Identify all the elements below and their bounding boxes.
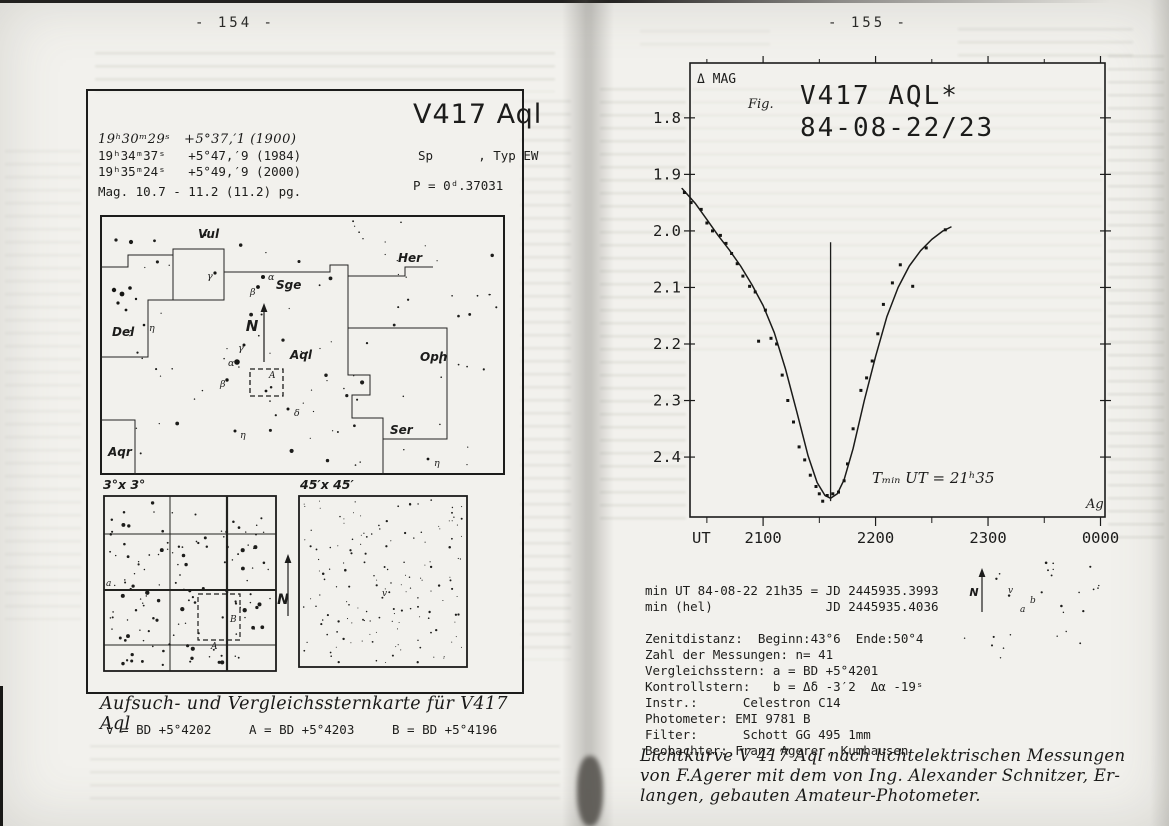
coordinate-line: 19ʰ35ᵐ24ˢ +5°49,′9 (2000) [98, 164, 301, 180]
spectral-type-line: Sp , Typ EW [418, 148, 538, 164]
star-name-title: V417 Aql [413, 99, 542, 130]
svg-text:Tₘᵢₙ UT = 21ʰ35: Tₘᵢₙ UT = 21ʰ35 [872, 469, 994, 487]
svg-text:v: v [382, 589, 387, 599]
svg-text:UT: UT [692, 529, 711, 547]
chart-45-arcmin: v [298, 495, 468, 668]
svg-text:γ: γ [238, 343, 244, 354]
svg-text:β: β [219, 379, 226, 390]
svg-text:Sge: Sge [276, 278, 301, 292]
svg-text:η: η [240, 430, 246, 441]
scan-edge-top [0, 0, 1169, 3]
observation-data-block: min UT 84-08-22 21h35 = JD 2445935.3993 … [645, 583, 939, 759]
constellation-finder-map: γαβγαβδηηηVulSgeHerDelAqlOphSerAqrAN [100, 215, 505, 475]
svg-text:η: η [149, 323, 155, 334]
svg-text:v: v [1008, 586, 1013, 596]
svg-text:Ag: Ag [1085, 497, 1104, 512]
bleed-through-text [95, 52, 555, 92]
bleed-through-text [640, 30, 770, 54]
page-number-right: - 155 - [783, 15, 953, 31]
svg-text:A: A [268, 371, 276, 381]
panel-45-label: 45′x 45′ [300, 477, 354, 492]
svg-text:Del: Del [112, 325, 135, 339]
svg-text:δ: δ [294, 408, 300, 419]
svg-text:Oph: Oph [420, 350, 447, 364]
light-curve-chart: 1.81.92.02.12.22.32.42100220023000000UTΔ… [640, 55, 1150, 560]
scan-edge-left [0, 686, 3, 826]
svg-text:Aql: Aql [289, 348, 313, 362]
svg-text:Aqr: Aqr [107, 445, 133, 459]
svg-text:2.4: 2.4 [653, 448, 681, 466]
svg-text:N: N [969, 586, 978, 599]
svg-text:Her: Her [398, 251, 423, 265]
period-value: P = 0ᵈ.37031 [413, 178, 503, 194]
panel-3x3-label: 3°x 3° [103, 477, 145, 492]
svg-text:Δ MAG: Δ MAG [697, 72, 736, 87]
svg-text:γ: γ [207, 271, 213, 282]
magnitude-range: Mag. 10.7 - 11.2 (11.2) pg. [98, 184, 301, 200]
svg-text:2100: 2100 [744, 529, 781, 547]
caption-line: von F.Agerer mit dem von Ing. Alexander … [640, 766, 1145, 786]
svg-text:2.0: 2.0 [653, 222, 681, 240]
coordinates-block: 19ʰ30ᵐ29ˢ +5°37,′1 (1900)19ʰ34ᵐ37ˢ +5°47… [98, 132, 301, 180]
svg-text:B: B [229, 615, 237, 625]
svg-text:2.3: 2.3 [653, 392, 681, 410]
svg-text:a: a [1020, 605, 1025, 615]
svg-text:N: N [277, 592, 289, 608]
light-curve-caption: Lichtkurve V 417 Aql nach lichtelektrisc… [640, 746, 1145, 806]
bleed-through-text [521, 100, 571, 660]
north-arrow: N [270, 548, 306, 624]
page-gutter-shadow [562, 0, 614, 826]
svg-text:1.9: 1.9 [653, 165, 681, 183]
svg-text:N: N [246, 317, 259, 335]
coordinate-line: 19ʰ34ᵐ37ˢ +5°47,′9 (1984) [98, 148, 301, 164]
bleed-through-text [90, 745, 560, 800]
svg-text:V417 AQL*: V417 AQL* [800, 81, 959, 111]
page-number-left: - 154 - [150, 15, 320, 31]
svg-text:2200: 2200 [857, 529, 894, 547]
chart-3x3-degree: BAa [103, 495, 277, 672]
bleed-through-text [958, 28, 1133, 58]
caption-line: langen, gebauten Amateur-Photometer. [640, 786, 1145, 806]
svg-text:α: α [268, 272, 275, 283]
bleed-through-text [5, 150, 81, 620]
svg-text:b: b [1030, 596, 1036, 606]
scan-edge-right [1150, 0, 1169, 826]
svg-text:0000: 0000 [1082, 529, 1119, 547]
svg-text:α: α [228, 358, 235, 369]
comparison-stars-line: v = BD +5°4202 A = BD +5°4203 B = BD +5°… [106, 722, 497, 738]
svg-text:Fig.: Fig. [747, 97, 774, 112]
svg-text:β: β [249, 287, 256, 298]
svg-text:Vul: Vul [198, 227, 220, 241]
svg-text:1.8: 1.8 [653, 109, 681, 127]
comparison-star-mini-map: vabN [950, 556, 1150, 671]
svg-text:2.1: 2.1 [653, 278, 681, 296]
svg-text:η: η [434, 458, 440, 469]
scanned-book-spread: - 154 - 19ʰ30ᵐ29ˢ +5°37,′1 (1900)19ʰ34ᵐ3… [0, 0, 1169, 826]
svg-text:2.2: 2.2 [653, 335, 681, 353]
svg-text:Ser: Ser [390, 423, 414, 437]
page-gutter-dark-blob [577, 756, 603, 826]
coordinate-line: 19ʰ30ᵐ29ˢ +5°37,′1 (1900) [98, 132, 301, 148]
svg-text:84-08-22/23: 84-08-22/23 [800, 113, 994, 143]
svg-text:A: A [210, 642, 218, 652]
caption-line: Lichtkurve V 417 Aql nach lichtelektrisc… [640, 746, 1145, 766]
svg-text:a: a [106, 579, 111, 589]
svg-text:2300: 2300 [969, 529, 1006, 547]
